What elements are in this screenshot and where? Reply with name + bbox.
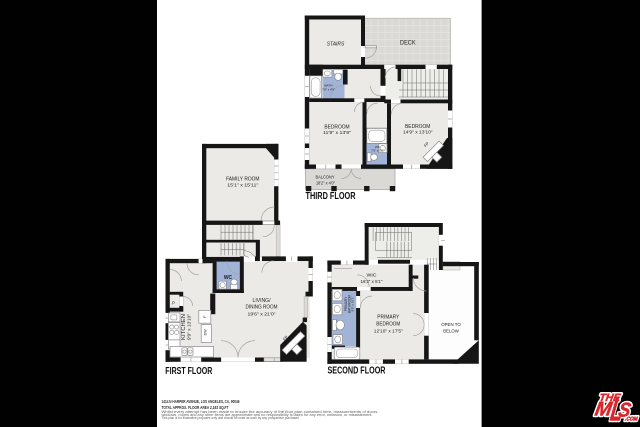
svg-text:FAMILY ROOM: FAMILY ROOM (226, 176, 259, 182)
svg-text:BEDROOM: BEDROOM (376, 321, 400, 327)
svg-text:11'9" x 13'9": 11'9" x 13'9" (323, 130, 351, 135)
svg-text:DECK: DECK (400, 39, 416, 46)
svg-text:WIC: WIC (367, 272, 378, 277)
svg-text:18'2" x 4'0": 18'2" x 4'0" (316, 181, 335, 186)
svg-text:8'0" x 10'3": 8'0" x 10'3" (351, 297, 355, 312)
svg-text:THIRD FLOOR: THIRD FLOOR (306, 191, 356, 202)
svg-text:This plan is for illustrative: This plan is for illustrative purposes o… (162, 416, 300, 420)
svg-text:1414 N HARPER AVENUE, LOS ANGE: 1414 N HARPER AVENUE, LOS ANGELES, CA, 9… (162, 399, 240, 404)
svg-text:7'6" x 5'0": 7'6" x 5'0" (371, 148, 384, 152)
svg-text:P: P (172, 300, 175, 305)
svg-text:19'6" x 21'0": 19'6" x 21'0" (248, 311, 276, 316)
svg-text:LIVING/: LIVING/ (253, 298, 272, 304)
svg-text:14'9" x 13'10": 14'9" x 13'10" (403, 130, 433, 135)
svg-text:7'8" x 4'9": 7'8" x 4'9" (322, 88, 335, 92)
svg-text:SECOND FLOOR: SECOND FLOOR (328, 365, 386, 376)
svg-text:FIRST FLOOR: FIRST FLOOR (165, 366, 212, 377)
svg-text:15'1" x 15'11": 15'1" x 15'11" (227, 182, 258, 188)
svg-text:OPEN TO: OPEN TO (441, 322, 461, 327)
svg-text:DW: DW (203, 329, 207, 336)
svg-text:DINING ROOM: DINING ROOM (246, 305, 278, 311)
svg-text:16'2" x 5'1": 16'2" x 5'1" (361, 279, 384, 284)
svg-text:12'10" x 17'5": 12'10" x 17'5" (374, 329, 403, 334)
svg-text:PRIMARY: PRIMARY (377, 314, 400, 320)
svg-text:9'9" x 13'10": 9'9" x 13'10" (187, 313, 192, 340)
svg-text:BELOW: BELOW (443, 328, 459, 333)
svg-text:BALCONY: BALCONY (316, 174, 335, 179)
svg-text:STAIRS: STAIRS (327, 42, 345, 48)
svg-text:WC: WC (224, 275, 233, 281)
svg-text:.COM: .COM (624, 417, 638, 423)
